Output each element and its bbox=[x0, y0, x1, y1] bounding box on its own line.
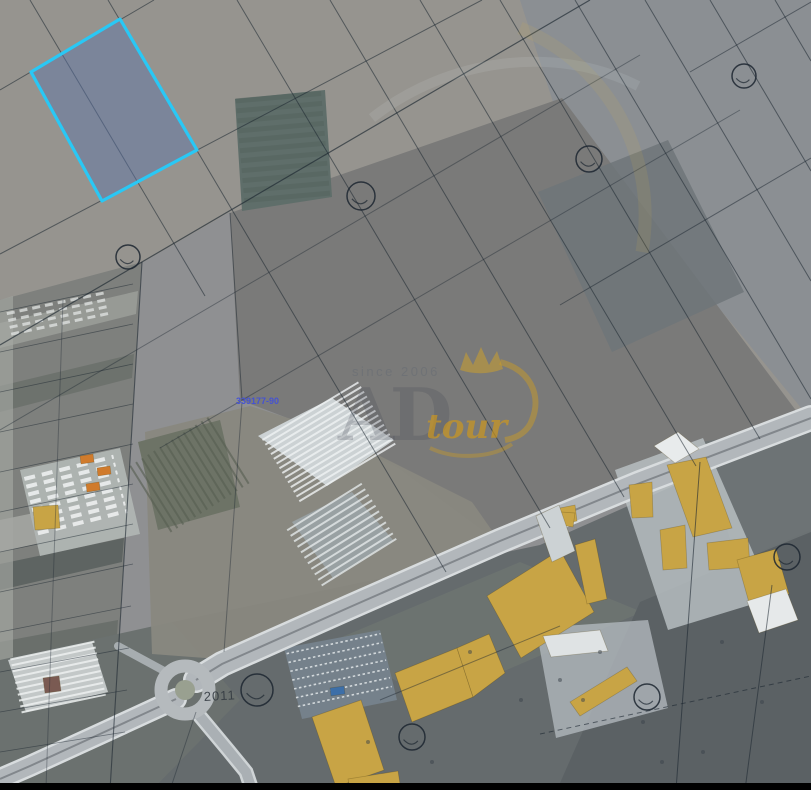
vegetation-dot-1 bbox=[598, 650, 602, 654]
parcel-id-label: 339177-90 bbox=[236, 396, 279, 406]
truck-orange-2 bbox=[97, 466, 111, 476]
vegetation-dot-6 bbox=[720, 640, 724, 644]
road-number-label: 2011 bbox=[203, 687, 236, 704]
shed-red-roof bbox=[43, 676, 61, 693]
vegetation-dot-8 bbox=[430, 760, 434, 764]
truck-orange-1 bbox=[80, 454, 94, 464]
vegetation-dot-4 bbox=[581, 698, 585, 702]
bottom-letterbox-bar bbox=[0, 783, 811, 790]
warehouse-ne-small bbox=[629, 482, 653, 518]
vegetation-dot-3 bbox=[701, 750, 705, 754]
vegetation-dot-10 bbox=[366, 740, 370, 744]
vegetation-dot-9 bbox=[519, 698, 523, 702]
vegetation-dot-7 bbox=[660, 760, 664, 764]
vehicle-blue bbox=[330, 686, 345, 696]
vegetation-dot-5 bbox=[760, 700, 764, 704]
satellite-map-canvas[interactable]: since 2006 AD tour 339177-90 2011 bbox=[0, 0, 811, 790]
warehouse-ne-mid bbox=[660, 525, 687, 570]
vegetation-dot-12 bbox=[558, 678, 562, 682]
vegetation-dot-11 bbox=[468, 650, 472, 654]
roundabout-island bbox=[175, 680, 195, 700]
map-viewport[interactable]: since 2006 AD tour 339177-90 2011 bbox=[0, 0, 811, 790]
vegetation-dot-2 bbox=[641, 720, 645, 724]
truck-orange-3 bbox=[86, 482, 100, 492]
watermark-suffix-text: tour bbox=[426, 407, 509, 447]
